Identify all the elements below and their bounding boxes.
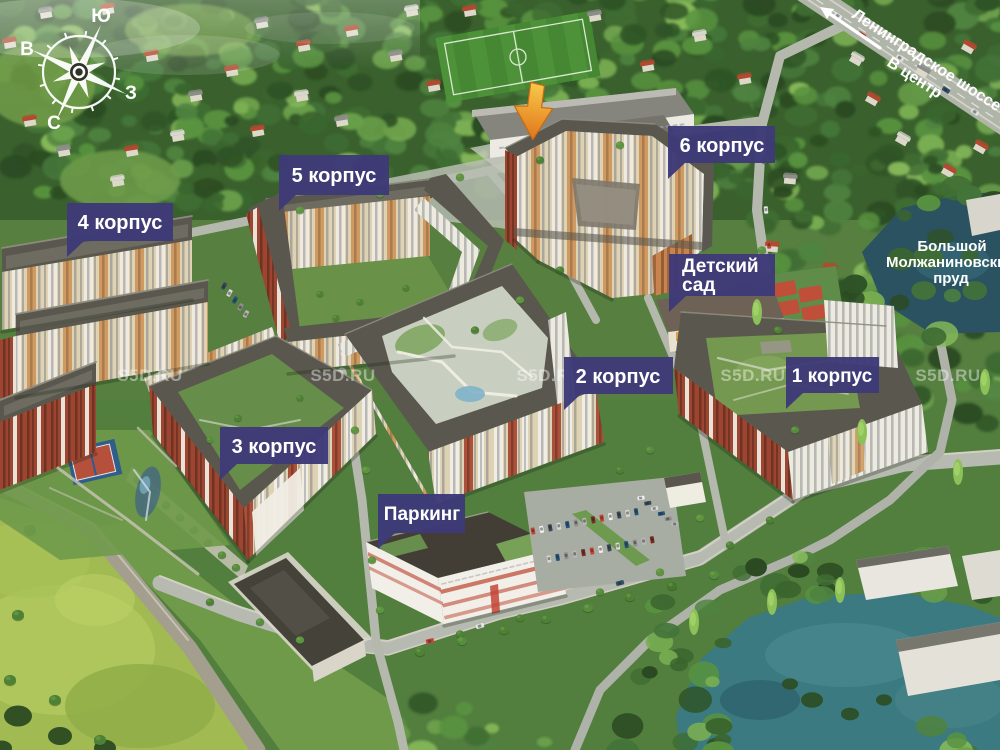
svg-text:С: С bbox=[47, 113, 61, 134]
svg-text:S5D.RU: S5D.RU bbox=[720, 366, 785, 385]
svg-text:Большой: Большой bbox=[917, 238, 986, 255]
svg-text:пруд: пруд bbox=[933, 270, 969, 287]
svg-text:S5D.RU: S5D.RU bbox=[117, 366, 182, 385]
svg-text:5 корпус: 5 корпус bbox=[292, 165, 377, 187]
svg-text:сад: сад bbox=[682, 275, 715, 296]
svg-text:S5D.RU: S5D.RU bbox=[915, 366, 980, 385]
svg-text:Паркинг: Паркинг bbox=[384, 504, 460, 525]
svg-text:З: З bbox=[125, 83, 137, 104]
svg-text:S5D.RU: S5D.RU bbox=[310, 366, 375, 385]
svg-text:Детский: Детский bbox=[682, 256, 759, 277]
svg-text:1 корпус: 1 корпус bbox=[792, 366, 873, 387]
svg-text:3 корпус: 3 корпус bbox=[232, 436, 317, 458]
svg-text:В: В bbox=[20, 39, 34, 60]
svg-text:2 корпус: 2 корпус bbox=[576, 366, 661, 388]
svg-text:Ю: Ю bbox=[91, 6, 111, 27]
svg-text:4 корпус: 4 корпус bbox=[78, 212, 163, 234]
svg-text:6 корпус: 6 корпус bbox=[680, 135, 765, 157]
svg-text:Молжаниновский: Молжаниновский bbox=[886, 254, 1000, 271]
